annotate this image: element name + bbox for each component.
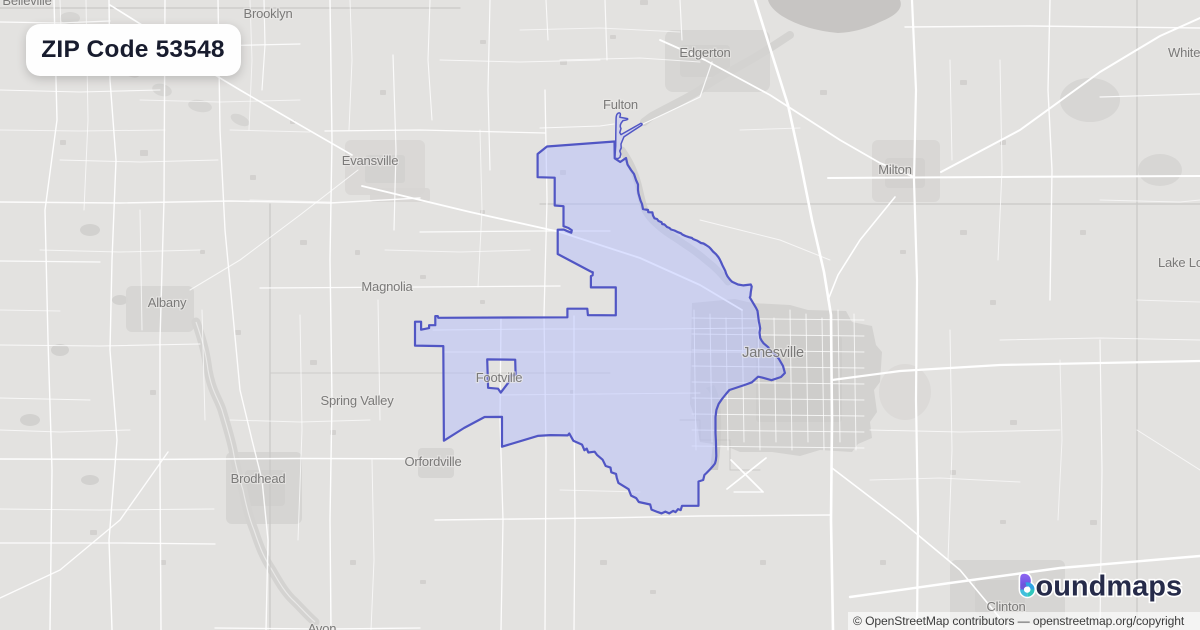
svg-text:Footville: Footville [476,370,523,385]
svg-text:Edgerton: Edgerton [679,45,730,60]
svg-text:Milton: Milton [878,162,911,177]
svg-text:Whitewater: Whitewater [1168,45,1200,60]
svg-text:Avon: Avon [308,621,337,630]
svg-text:Belleville: Belleville [2,0,51,8]
svg-text:Lake Lorraine: Lake Lorraine [1158,255,1200,270]
svg-text:Magnolia: Magnolia [361,279,413,294]
svg-text:Brodhead: Brodhead [231,471,286,486]
svg-text:Albany: Albany [148,295,187,310]
svg-text:Janesville: Janesville [742,345,804,361]
svg-text:oundmaps: oundmaps [1036,571,1183,603]
svg-text:Orfordville: Orfordville [404,454,461,469]
svg-text:Brooklyn: Brooklyn [244,6,293,21]
svg-text:Spring Valley: Spring Valley [320,393,394,408]
svg-text:Fulton: Fulton [603,97,638,112]
svg-text:Evansville: Evansville [342,153,399,168]
